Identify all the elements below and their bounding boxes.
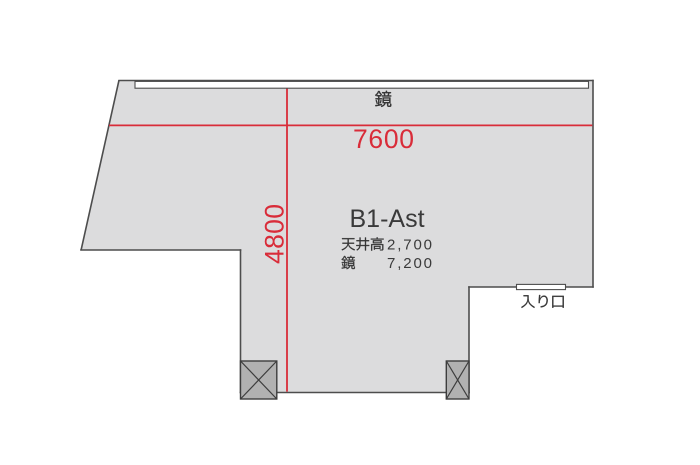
svg-text:4800: 4800 (260, 204, 290, 264)
svg-text:7600: 7600 (353, 124, 414, 154)
svg-text:7,200: 7,200 (387, 255, 432, 272)
svg-text:2,700: 2,700 (387, 237, 432, 254)
svg-text:B1-Ast: B1-Ast (350, 205, 425, 233)
